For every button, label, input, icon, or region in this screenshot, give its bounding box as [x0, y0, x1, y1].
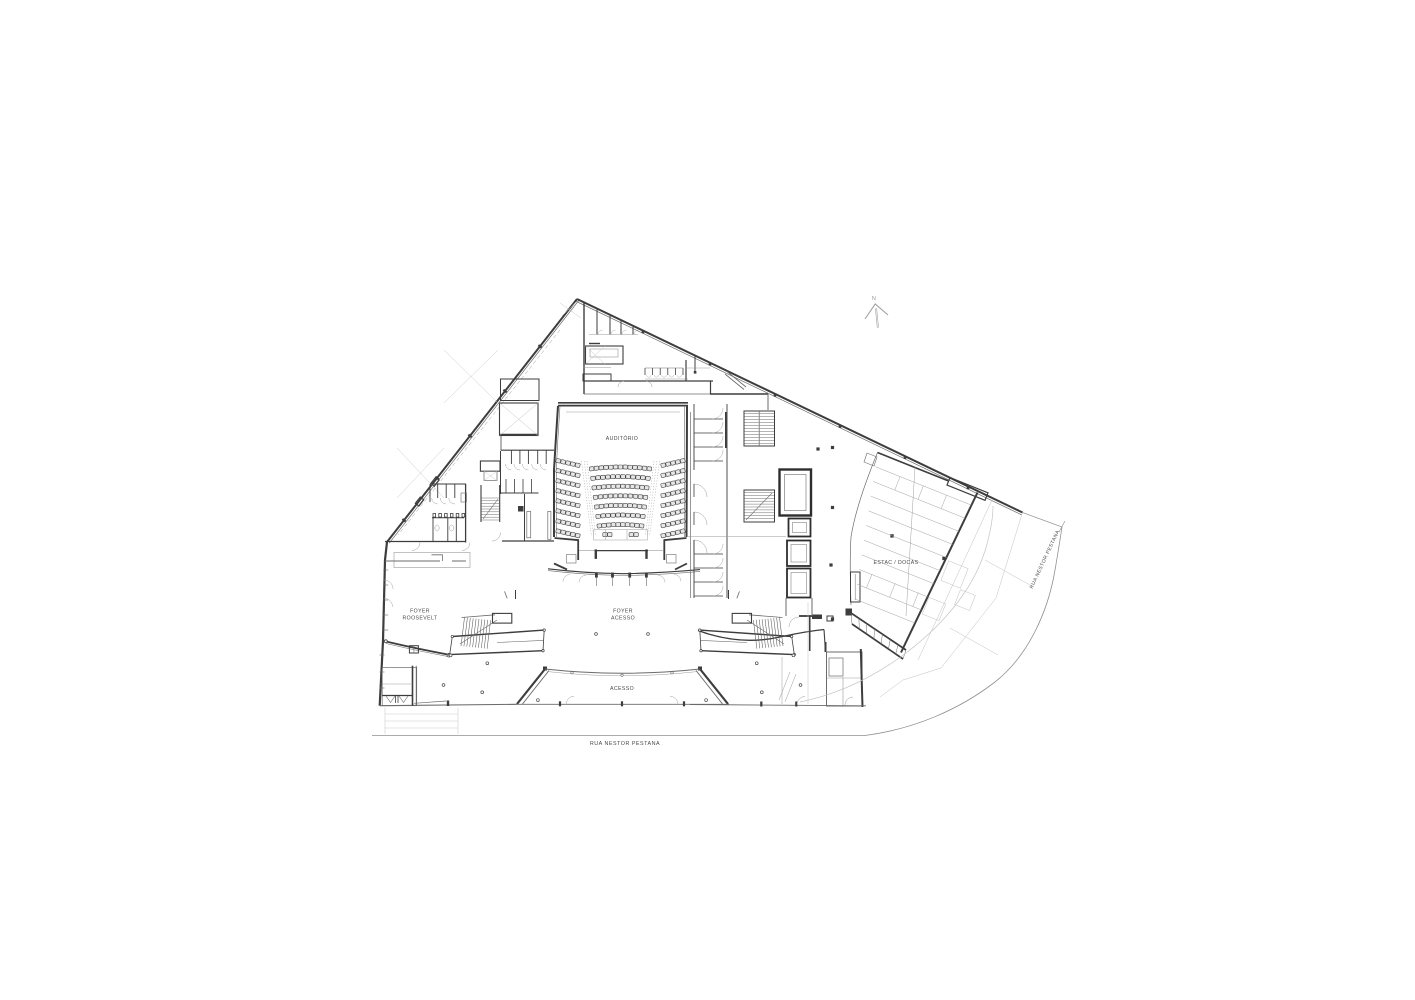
svg-text:FOYER: FOYER: [410, 609, 430, 615]
svg-text:ROOSEVELT: ROOSEVELT: [403, 616, 438, 622]
svg-text:AUDITÓRIO: AUDITÓRIO: [606, 435, 638, 442]
svg-text:ACESSO: ACESSO: [610, 686, 634, 692]
svg-text:ESTAC / DOCAS: ESTAC / DOCAS: [874, 560, 919, 566]
svg-text:N: N: [872, 296, 876, 302]
svg-text:RUA NESTOR PESTANA: RUA NESTOR PESTANA: [590, 741, 660, 747]
svg-text:ACESSO: ACESSO: [611, 616, 635, 622]
svg-text:FOYER: FOYER: [613, 609, 633, 615]
